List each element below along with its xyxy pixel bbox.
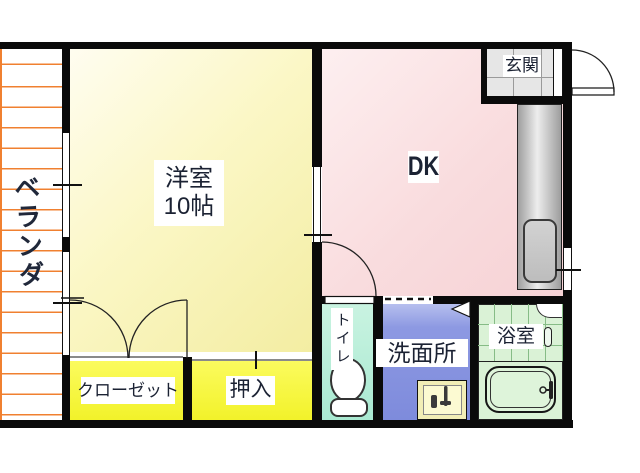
door-tick <box>304 234 332 236</box>
oshiire-label: 押入 <box>226 376 275 405</box>
dk-label: DK <box>408 151 439 183</box>
wall-left-upper <box>62 49 70 133</box>
wall-closet-divider <box>183 357 192 420</box>
window-left-2 <box>62 252 70 355</box>
western-room-label: 洋室 10帖 <box>154 160 224 226</box>
window-tick <box>556 269 581 271</box>
closet-label: クローゼット <box>81 377 175 404</box>
wall-entrance-bottom <box>481 96 572 104</box>
wall-left-lower <box>62 355 70 420</box>
shower-control-icon <box>544 327 552 347</box>
wall-center-upper <box>312 49 322 167</box>
wall-center-lower <box>312 242 322 420</box>
entrance-label: 玄関 <box>503 55 541 77</box>
entrance-door-frame <box>553 49 563 96</box>
toilet-door <box>325 297 374 304</box>
wall-bottom <box>0 420 573 428</box>
toilet-label: トイレ <box>331 308 353 370</box>
oshiire-tick <box>255 351 257 369</box>
entrance-tile-line <box>487 77 553 78</box>
western-room-size: 10帖 <box>164 193 215 221</box>
entrance-door-leaf <box>572 88 614 95</box>
entrance-tile-line <box>541 49 542 96</box>
washstand-basin <box>423 385 462 415</box>
closet-front-line <box>70 356 183 358</box>
wall-dk-bottom-c <box>433 296 572 304</box>
window-tick <box>53 184 82 186</box>
veranda-label: ベランダ <box>5 171 49 293</box>
room-door-opening <box>313 167 321 242</box>
entrance-door-arc <box>572 50 614 92</box>
floor-plan: ベランダ <box>0 0 640 473</box>
wall-entrance-left <box>481 42 487 104</box>
wall-dk-bottom-a <box>312 296 325 304</box>
wall-left-mid <box>62 237 70 252</box>
western-room-name: 洋室 <box>165 165 213 193</box>
wall-washroom-bathroom <box>470 296 478 420</box>
oshiire-front-line <box>192 359 312 361</box>
washroom-label: 洗面所 <box>376 339 468 367</box>
kitchen-sink <box>523 219 557 283</box>
window-tick <box>53 302 82 304</box>
bathtub-inner-rim <box>490 371 551 408</box>
bathroom-label: 浴室 <box>489 324 543 349</box>
